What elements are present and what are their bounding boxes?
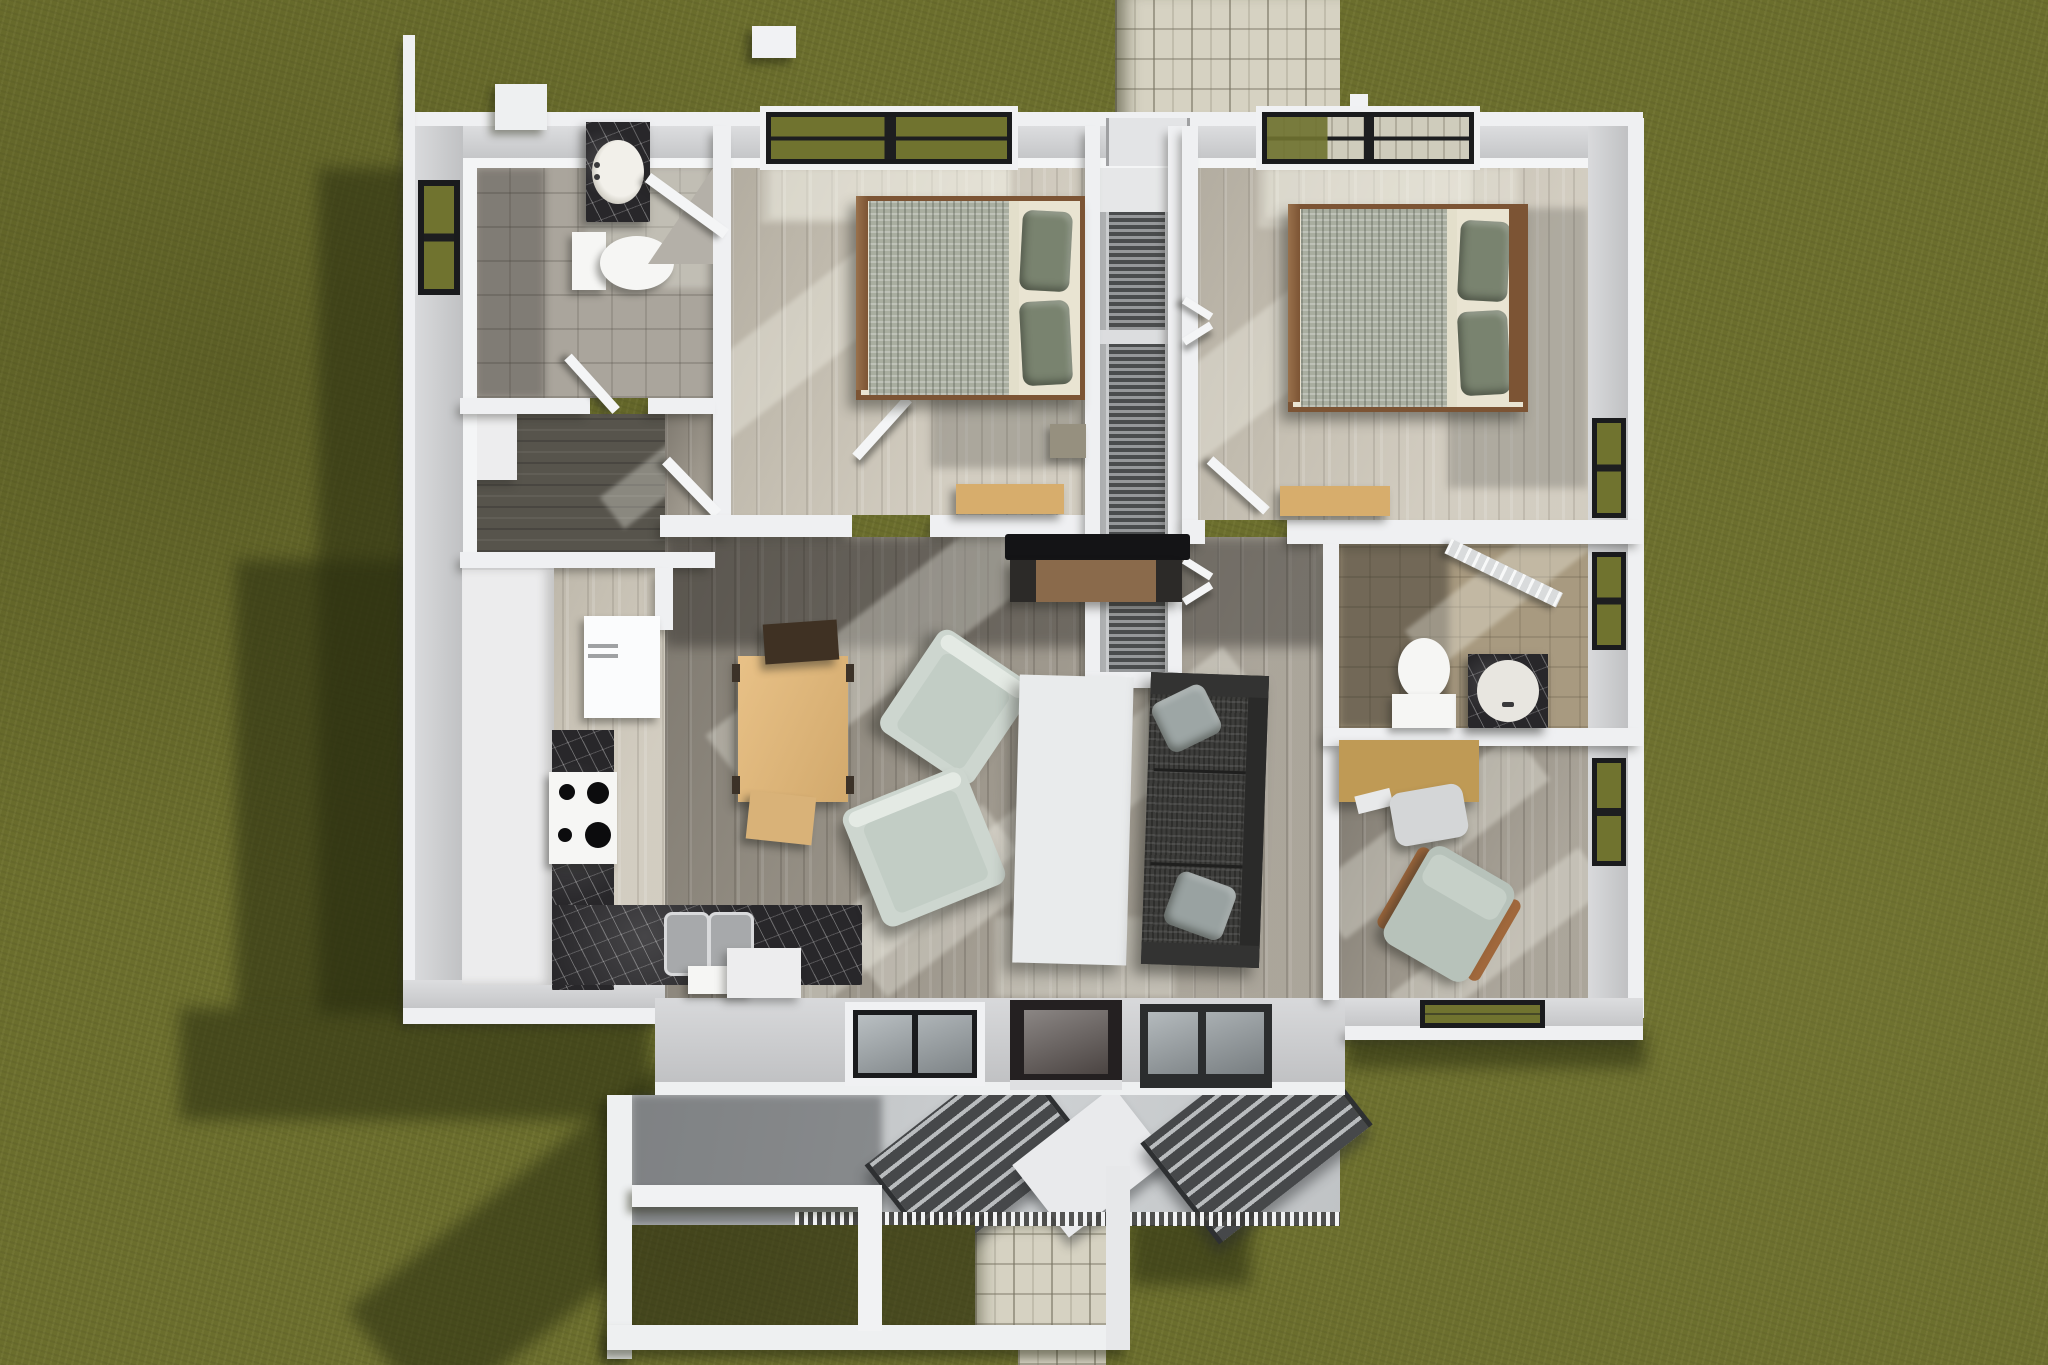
rear-walkway xyxy=(1115,0,1340,120)
bedroom2-north-window xyxy=(1256,106,1480,170)
wall-office-west xyxy=(1323,544,1339,1000)
front-window-right xyxy=(1140,1004,1272,1088)
bedroom1-pillow-top xyxy=(1019,210,1073,293)
wall-west-trim xyxy=(403,35,415,1012)
bedroom2-pillow-bottom xyxy=(1457,310,1511,397)
bedroom2-desk xyxy=(1280,486,1390,516)
dining-table xyxy=(738,656,848,802)
wall-laundry-south xyxy=(460,552,715,568)
bedroom2-bed xyxy=(1288,204,1528,412)
wall-south-office-trim xyxy=(1345,1026,1643,1040)
dining-chair-north xyxy=(763,619,840,664)
porch-shadow-band xyxy=(180,1008,650,1120)
coffee-table xyxy=(1012,675,1133,966)
bath1-sink xyxy=(592,140,644,204)
office-south-window xyxy=(1420,1000,1545,1028)
bedroom1-desk xyxy=(956,484,1064,514)
bedroom1-nightstand xyxy=(1050,424,1086,458)
sofa xyxy=(1141,672,1269,968)
bedroom-2-east-window xyxy=(1592,418,1626,518)
media-console xyxy=(1010,560,1182,602)
stair-flight-upper xyxy=(1106,212,1168,330)
ensuite-sink xyxy=(1477,660,1539,722)
ensuite-bathroom xyxy=(1339,544,1588,728)
ensuite-toilet-tank xyxy=(1392,694,1456,728)
bedroom1-north-window xyxy=(760,106,1018,170)
porch-yard-patch xyxy=(632,1225,975,1325)
house-shadow-southwest xyxy=(236,560,412,1012)
bathroom-west-window xyxy=(418,180,460,295)
ensuite-east-window xyxy=(1592,552,1626,650)
office-east-window xyxy=(1592,758,1626,866)
tv xyxy=(1005,534,1190,560)
bedroom1-pillow-bottom xyxy=(1019,300,1073,387)
kitchen-pantry-cabinets xyxy=(462,568,554,985)
corner-trim-nw xyxy=(495,84,547,130)
wall-bedroom1-south-a xyxy=(660,515,852,537)
wall-bedroom2-south-b xyxy=(1287,520,1643,544)
kitchen-range xyxy=(549,772,617,864)
bath1-vanity xyxy=(586,122,650,222)
back-door-landing xyxy=(1100,168,1168,212)
wall-bath1-south xyxy=(460,398,590,414)
ensuite-toilet-bowl xyxy=(1398,638,1450,700)
laundry-wall-stub xyxy=(475,414,517,480)
floorplan-render xyxy=(0,0,2048,1365)
stair-flight-mid xyxy=(1106,344,1168,546)
roof-vent-block xyxy=(752,26,796,58)
wall-stairs-east xyxy=(1168,126,1182,688)
wall-east-trim xyxy=(1628,118,1644,1018)
sofa-pillow-bottom xyxy=(1161,869,1238,943)
bedroom2-pillow-top xyxy=(1457,220,1511,303)
wall-stairs-west xyxy=(1085,126,1100,688)
porch-rail-vertical xyxy=(858,1185,882,1331)
dining-chair-south xyxy=(746,791,817,846)
bedroom1-bed xyxy=(856,196,1085,400)
front-door xyxy=(1010,1000,1122,1090)
front-porch xyxy=(607,1086,1340,1365)
wall-bath1-east xyxy=(713,126,731,536)
ensuite-vanity xyxy=(1468,654,1548,728)
front-wall xyxy=(655,998,1345,1095)
porch-beam-right xyxy=(1106,1166,1130,1350)
refrigerator xyxy=(584,616,660,718)
porch-beam-left xyxy=(607,1095,632,1359)
wall-bedroom2-west xyxy=(1182,126,1198,526)
porch-rail-horizontal xyxy=(632,1185,882,1207)
bedroom1-blanket xyxy=(869,201,1009,395)
wall-bath1-south2 xyxy=(648,398,715,414)
bedroom2-blanket xyxy=(1301,209,1447,407)
wall-south-kitchen-trim xyxy=(403,1008,665,1024)
kitchen-island-block xyxy=(727,948,801,998)
front-window-left xyxy=(845,1002,985,1086)
